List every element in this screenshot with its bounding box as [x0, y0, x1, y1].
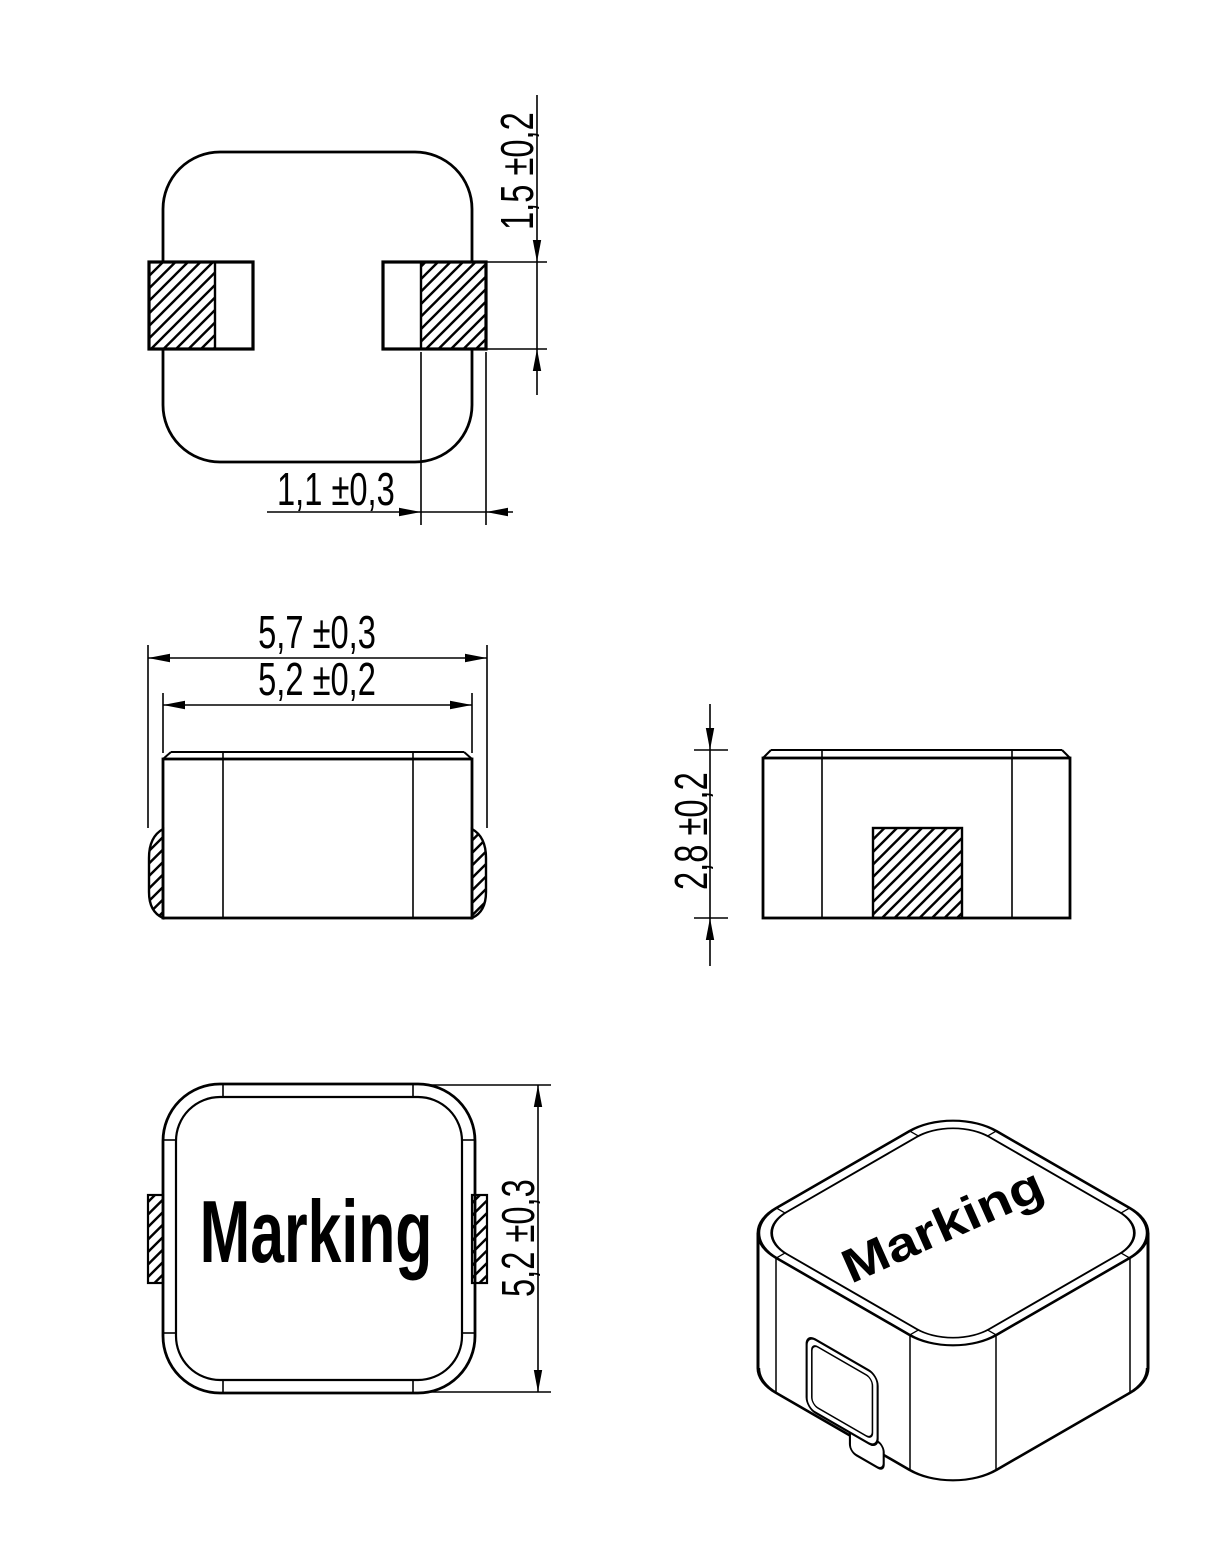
top-view: Marking 5,2 ±0,3: [148, 1084, 551, 1393]
arrowhead: [450, 701, 472, 709]
terminal-bulge-right: [472, 829, 486, 918]
arrowhead: [465, 654, 487, 662]
dim-label-pad-width: 1,1 ±0,3: [277, 465, 395, 516]
dim-label-overall-width: 5,7 ±0,3: [258, 608, 376, 659]
terminal-pad-right: [383, 262, 486, 349]
dim-label-pad-height: 1,5 ±0,2: [493, 112, 544, 230]
top-terminal-left: [148, 1195, 163, 1283]
arrowhead: [486, 508, 508, 516]
arrowhead: [534, 1085, 542, 1107]
terminal-bulge-left: [149, 829, 163, 918]
dim-label-body-width: 5,2 ±0,2: [258, 655, 376, 706]
front-body-outline: [163, 759, 472, 918]
arrowhead: [148, 654, 170, 662]
dim-label-body-depth: 5,2 ±0,3: [494, 1179, 545, 1297]
marking-label: Marking: [200, 1184, 433, 1282]
front-view: 5,7 ±0,3 5,2 ±0,2: [148, 608, 487, 918]
arrowhead: [399, 508, 421, 516]
side-terminal-hatch: [873, 828, 962, 918]
arrowhead: [534, 1370, 542, 1392]
arrowhead: [706, 728, 714, 750]
arrowhead: [533, 349, 541, 371]
arrowhead: [706, 918, 714, 940]
isometric-view: Marking: [733, 1106, 1173, 1495]
top-terminal-right: [472, 1195, 487, 1283]
arrowhead: [533, 240, 541, 262]
side-view: 2,8 ±0,2: [667, 704, 1070, 966]
dim-label-body-height: 2,8 ±0,2: [667, 772, 718, 890]
bottom-view: 1,5 ±0,2 1,1 ±0,3: [149, 95, 547, 525]
technical-drawing-svg: 1,5 ±0,2 1,1 ±0,3 5,7 ±0,3 5: [0, 0, 1229, 1558]
terminal-pad-left: [149, 262, 253, 349]
drawing-sheet: 1,5 ±0,2 1,1 ±0,3 5,7 ±0,3 5: [0, 0, 1229, 1558]
arrowhead: [163, 701, 185, 709]
